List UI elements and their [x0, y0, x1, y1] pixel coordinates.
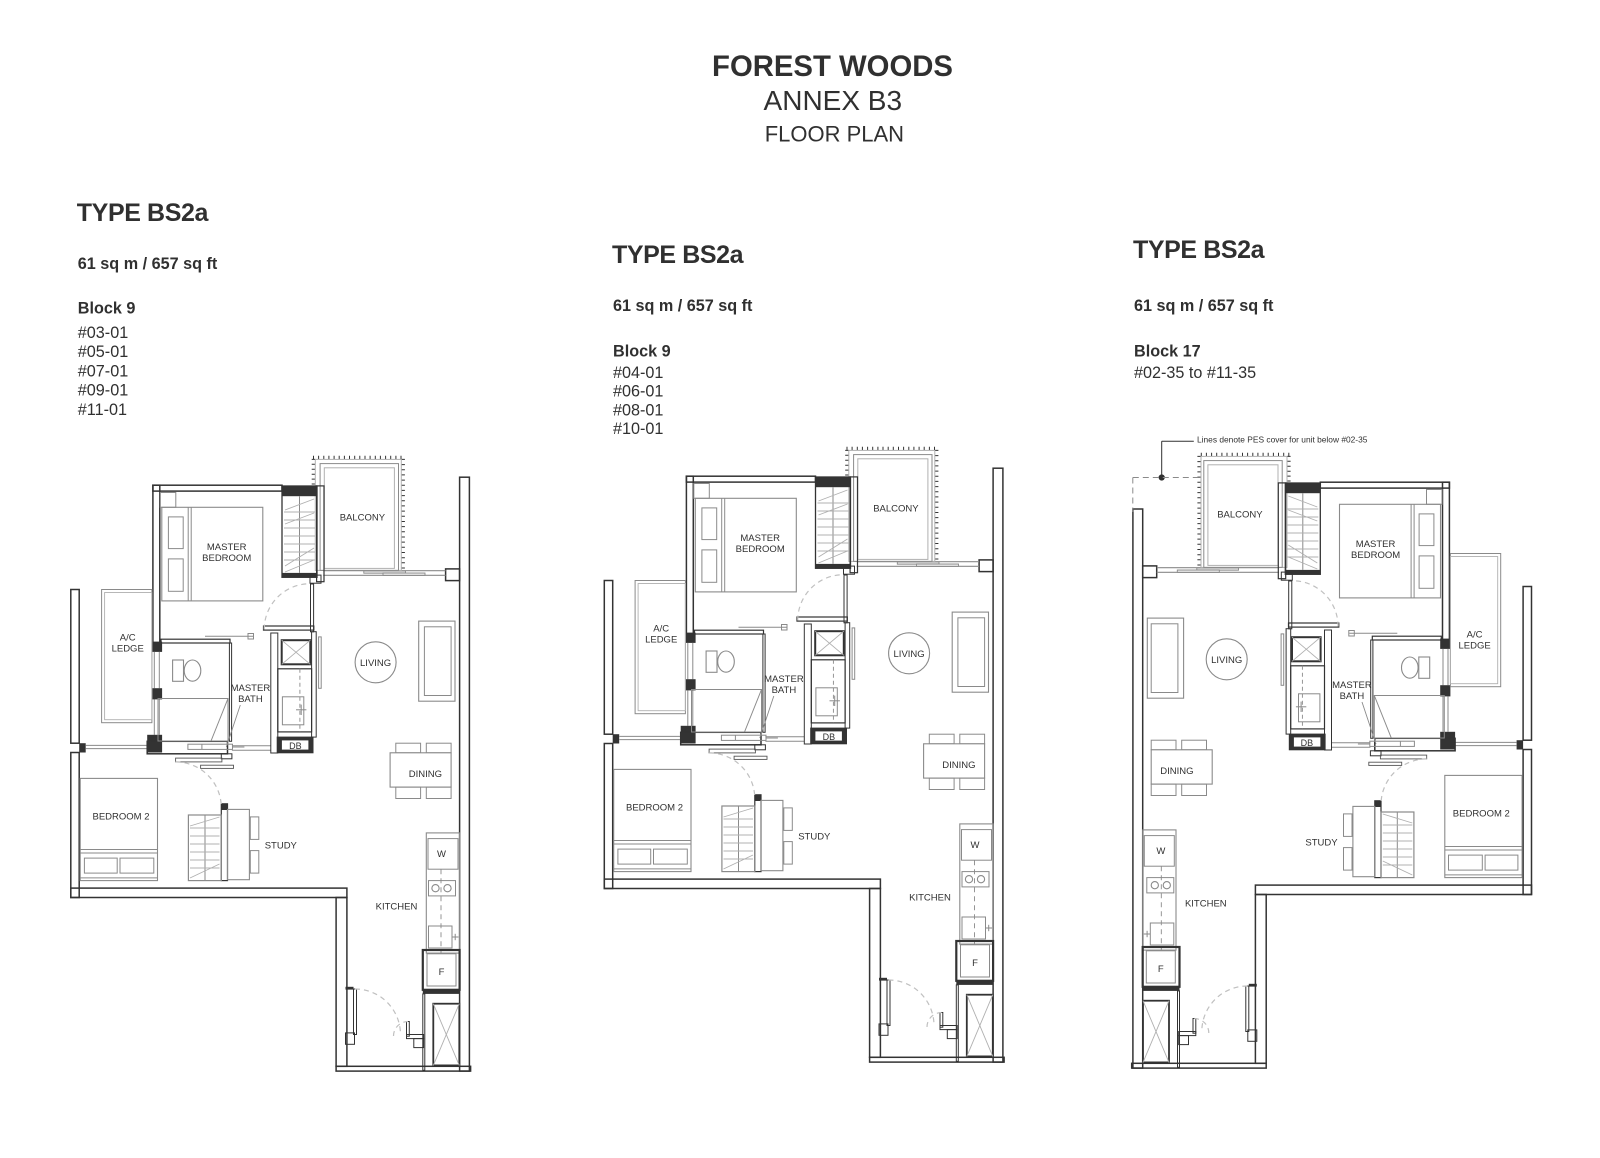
svg-text:MASTER: MASTER [1356, 539, 1396, 550]
svg-text:TYPE BS2a: TYPE BS2a [77, 199, 210, 227]
svg-text:ANNEX B3: ANNEX B3 [764, 85, 903, 116]
svg-text:A/C: A/C [1467, 630, 1483, 641]
svg-text:Block 17: Block 17 [1134, 343, 1201, 361]
svg-text:STUDY: STUDY [265, 841, 298, 852]
svg-text:F: F [439, 967, 445, 978]
svg-text:LIVING: LIVING [360, 658, 391, 669]
svg-text:MASTER: MASTER [231, 683, 271, 694]
svg-text:BEDROOM: BEDROOM [202, 553, 251, 564]
svg-text:#02-35 to #11-35: #02-35 to #11-35 [1134, 364, 1256, 382]
svg-text:W: W [437, 849, 446, 860]
svg-text:W: W [1156, 846, 1165, 857]
svg-text:FLOOR PLAN: FLOOR PLAN [765, 122, 904, 147]
svg-text:61 sq m / 657 sq ft: 61 sq m / 657 sq ft [1134, 297, 1274, 315]
svg-text:Block 9: Block 9 [613, 343, 671, 361]
svg-text:#11-01: #11-01 [78, 401, 127, 419]
svg-text:BATH: BATH [238, 694, 263, 705]
svg-text:TYPE BS2a: TYPE BS2a [612, 241, 745, 269]
svg-text:BEDROOM: BEDROOM [1351, 550, 1400, 561]
svg-text:DB: DB [1301, 738, 1314, 748]
svg-text:BALCONY: BALCONY [340, 513, 386, 524]
svg-text:61 sq m / 657 sq ft: 61 sq m / 657 sq ft [613, 297, 753, 315]
svg-text:DB: DB [289, 741, 302, 751]
svg-text:BEDROOM 2: BEDROOM 2 [1453, 808, 1510, 819]
svg-text:MASTER: MASTER [764, 674, 804, 685]
svg-text:#10-01: #10-01 [613, 420, 663, 438]
svg-text:LEDGE: LEDGE [645, 635, 677, 646]
svg-text:MASTER: MASTER [1332, 680, 1372, 691]
svg-text:STUDY: STUDY [798, 832, 831, 843]
svg-text:DINING: DINING [942, 760, 975, 771]
svg-text:61 sq m / 657 sq ft: 61 sq m / 657 sq ft [78, 255, 218, 273]
svg-text:BEDROOM: BEDROOM [736, 544, 785, 555]
svg-text:MASTER: MASTER [740, 533, 780, 544]
svg-text:KITCHEN: KITCHEN [1185, 899, 1227, 910]
svg-text:LIVING: LIVING [1211, 655, 1242, 666]
svg-text:MASTER: MASTER [207, 542, 247, 553]
svg-text:KITCHEN: KITCHEN [376, 902, 418, 913]
svg-text:LIVING: LIVING [894, 649, 925, 660]
svg-text:TYPE BS2a: TYPE BS2a [1133, 236, 1266, 264]
svg-text:Block 9: Block 9 [78, 300, 136, 318]
svg-text:W: W [971, 840, 980, 851]
svg-text:#05-01: #05-01 [78, 343, 128, 361]
svg-text:#07-01: #07-01 [78, 362, 128, 380]
svg-text:F: F [972, 958, 978, 969]
svg-text:DINING: DINING [1160, 766, 1193, 777]
svg-text:#09-01: #09-01 [78, 382, 128, 400]
svg-text:BALCONY: BALCONY [873, 504, 919, 515]
svg-text:#04-01: #04-01 [613, 364, 663, 382]
svg-text:BATH: BATH [772, 685, 797, 696]
svg-text:A/C: A/C [653, 624, 669, 635]
svg-text:F: F [1158, 964, 1164, 975]
svg-text:LEDGE: LEDGE [112, 644, 144, 655]
svg-text:STUDY: STUDY [1305, 838, 1338, 849]
svg-text:DB: DB [823, 732, 836, 742]
svg-text:Lines denote PES cover for uni: Lines denote PES cover for unit below #0… [1197, 435, 1368, 445]
svg-text:#03-01: #03-01 [78, 324, 128, 342]
svg-text:KITCHEN: KITCHEN [909, 893, 951, 904]
svg-text:BEDROOM 2: BEDROOM 2 [92, 811, 149, 822]
svg-text:LEDGE: LEDGE [1458, 641, 1490, 652]
svg-text:BALCONY: BALCONY [1217, 510, 1263, 521]
svg-text:FOREST WOODS: FOREST WOODS [712, 50, 953, 83]
svg-text:A/C: A/C [120, 633, 136, 644]
svg-text:BATH: BATH [1340, 691, 1365, 702]
svg-text:#08-01: #08-01 [613, 401, 663, 419]
svg-text:#06-01: #06-01 [613, 383, 663, 401]
svg-text:BEDROOM 2: BEDROOM 2 [626, 802, 683, 813]
svg-text:DINING: DINING [409, 769, 442, 780]
